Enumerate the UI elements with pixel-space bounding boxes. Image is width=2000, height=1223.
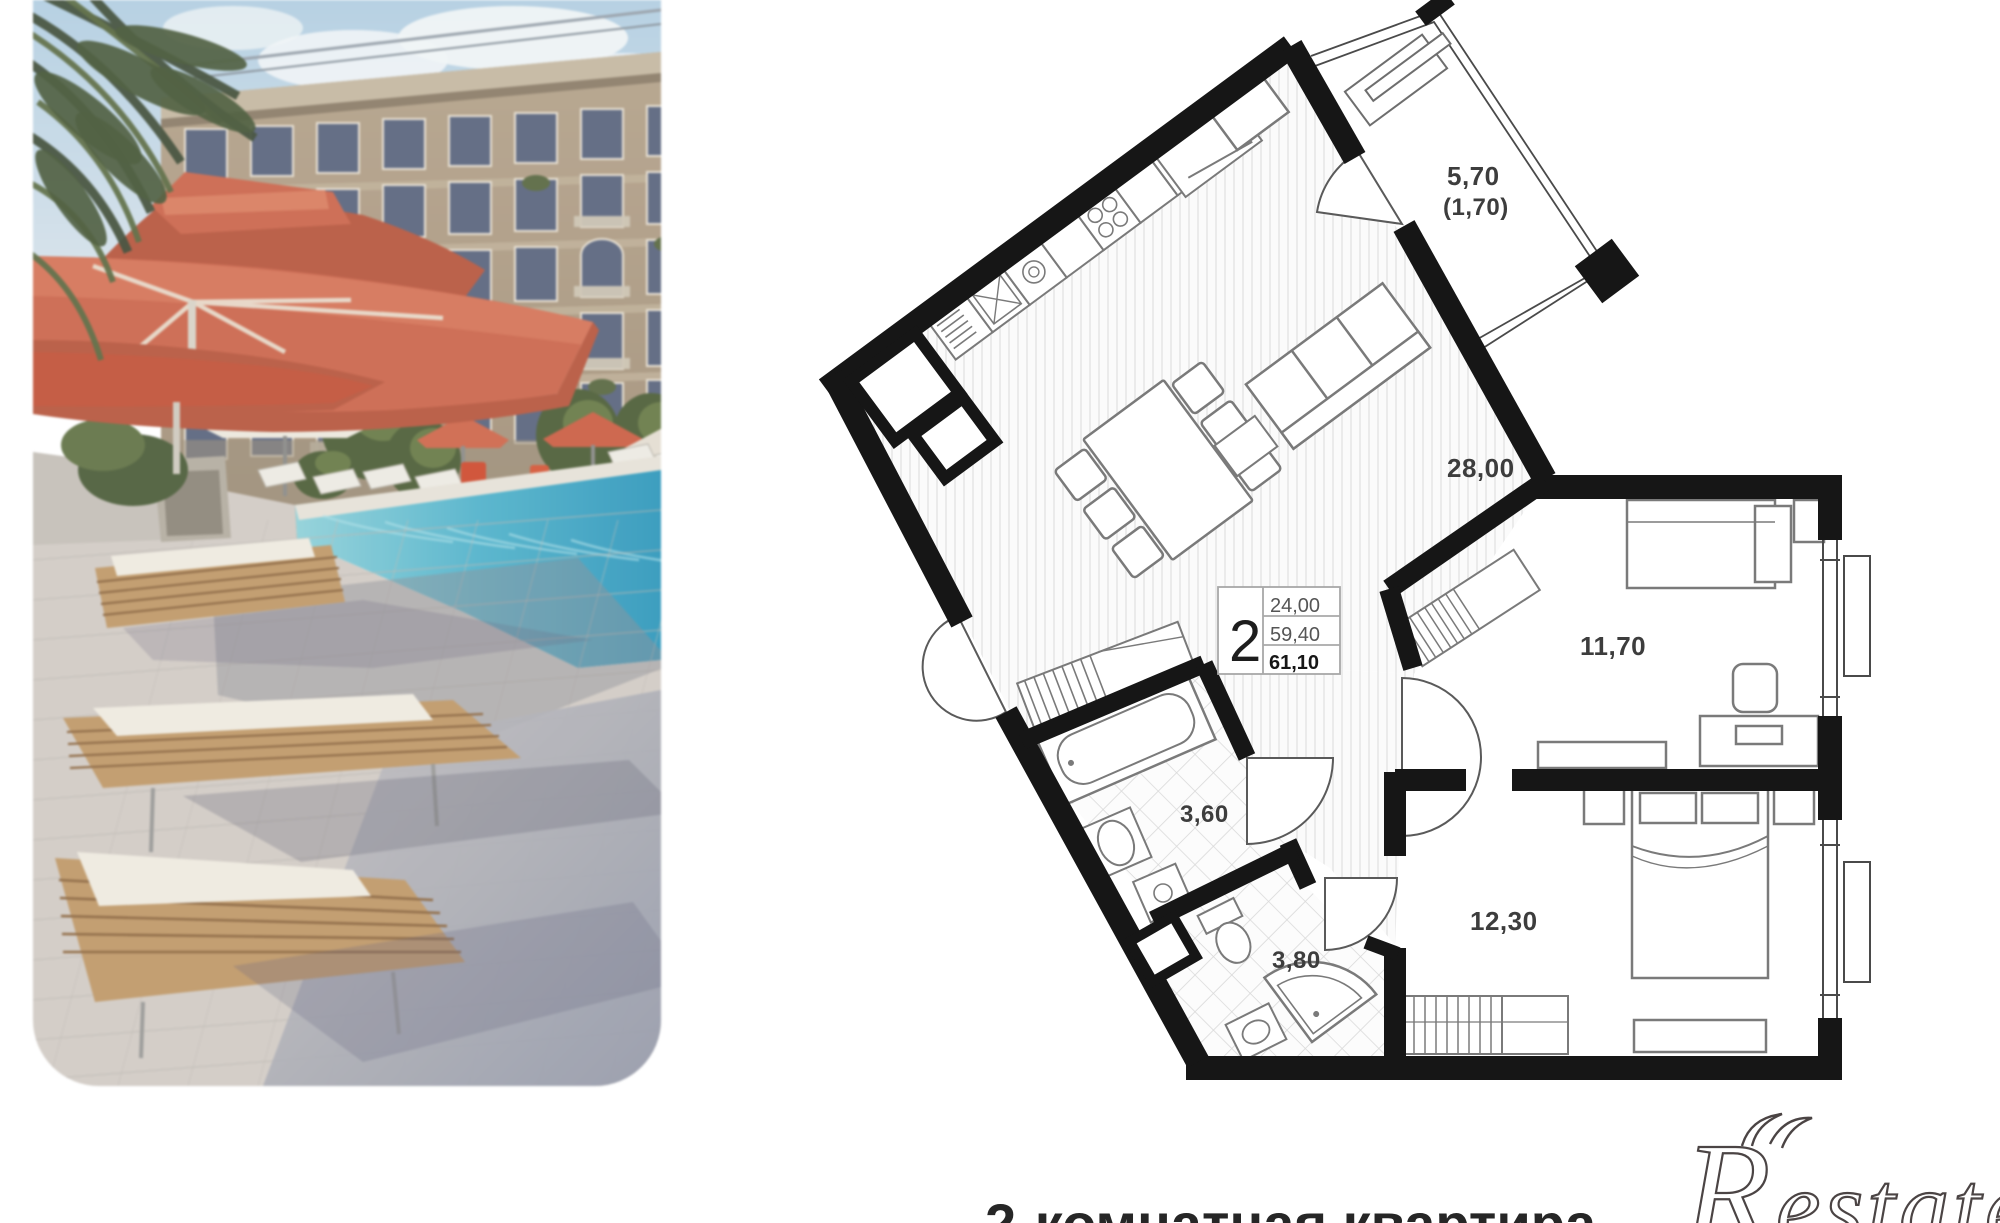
svg-text:(1,70): (1,70) <box>1443 194 1509 221</box>
svg-text:3,60: 3,60 <box>1180 801 1229 828</box>
svg-text:12,30: 12,30 <box>1470 906 1538 936</box>
svg-text:3,80: 3,80 <box>1272 947 1321 974</box>
svg-text:estate: estate <box>1776 1151 2000 1223</box>
svg-text:24,00: 24,00 <box>1270 595 1320 617</box>
svg-text:61,10: 61,10 <box>1269 652 1319 674</box>
svg-text:2: 2 <box>1229 609 1261 674</box>
svg-text:11,70: 11,70 <box>1580 631 1646 661</box>
svg-text:28,00: 28,00 <box>1447 453 1515 483</box>
svg-text:59,40: 59,40 <box>1270 624 1320 646</box>
svg-text:5,70: 5,70 <box>1447 161 1500 191</box>
